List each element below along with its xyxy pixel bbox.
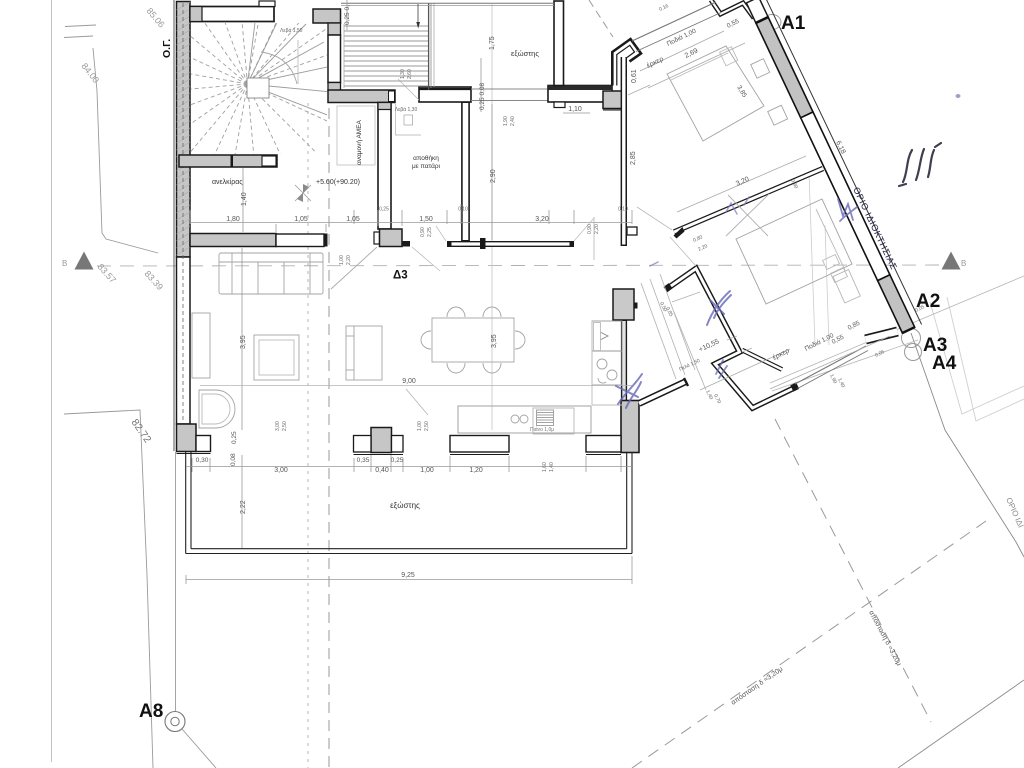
svg-text:A1: A1 [781, 13, 806, 34]
svg-text:Πιάνο 1,0μ: Πιάνο 1,0μ [530, 426, 554, 433]
svg-text:1,00: 1,00 [339, 255, 345, 265]
svg-text:2,90: 2,90 [490, 169, 497, 183]
svg-text:1,50: 1,50 [419, 216, 433, 223]
svg-text:A8: A8 [139, 701, 163, 722]
svg-text:3,00: 3,00 [275, 421, 281, 431]
svg-text:ανελκίρας: ανελκίρας [212, 178, 243, 186]
svg-text:3,00: 3,00 [274, 467, 288, 474]
svg-text:0,25: 0,25 [231, 431, 238, 444]
svg-text:1,40: 1,40 [549, 462, 555, 472]
svg-text:Ο.Γ.: Ο.Γ. [161, 39, 173, 58]
svg-text:1,60: 1,60 [542, 462, 548, 472]
svg-text:Δ3: Δ3 [393, 270, 408, 282]
svg-text:2,50: 2,50 [424, 421, 430, 431]
svg-text:2,85: 2,85 [630, 151, 637, 165]
svg-text:1,00: 1,00 [420, 467, 434, 474]
svg-text:1,00: 1,00 [417, 421, 423, 431]
svg-text:2,20: 2,20 [346, 255, 352, 265]
svg-text:3,95: 3,95 [491, 334, 498, 348]
svg-text:2,22: 2,22 [240, 500, 247, 514]
svg-text:B: B [961, 259, 966, 268]
svg-text:9,00: 9,00 [402, 378, 416, 385]
svg-text:B: B [62, 259, 67, 268]
svg-text:αποθήκη: αποθήκη [413, 155, 439, 162]
svg-text:Λεβά 1,30: Λεβά 1,30 [395, 106, 418, 113]
svg-text:0,35: 0,35 [357, 457, 370, 464]
svg-text:+5.60(+90.20): +5.60(+90.20) [316, 179, 360, 186]
svg-text:1,90: 1,90 [503, 116, 509, 126]
svg-text:1,30: 1,30 [400, 69, 406, 79]
svg-text:0,10: 0,10 [618, 207, 628, 213]
svg-text:0,08: 0,08 [230, 453, 237, 466]
svg-text:αναμονή ΑΜΕΑ: αναμονή ΑΜΕΑ [356, 119, 363, 165]
svg-text:A4: A4 [932, 353, 957, 374]
svg-text:με πατάρι: με πατάρι [412, 162, 441, 170]
svg-text:1,05: 1,05 [346, 216, 360, 223]
svg-text:9,25: 9,25 [401, 572, 415, 579]
svg-text:1,20: 1,20 [469, 467, 483, 474]
svg-text:1,80: 1,80 [226, 216, 240, 223]
svg-text:1,05: 1,05 [294, 216, 308, 223]
svg-text:0,25 0,: 0,25 0, [344, 5, 351, 25]
svg-text:2,25: 2,25 [427, 227, 433, 237]
svg-text:0,90: 0,90 [420, 227, 426, 237]
svg-text:2,60: 2,60 [407, 69, 413, 79]
svg-text:2,40: 2,40 [510, 116, 516, 126]
svg-text:εξώστης: εξώστης [390, 501, 420, 510]
svg-text:1,40: 1,40 [241, 192, 248, 206]
svg-text:0,25 0,08: 0,25 0,08 [479, 83, 486, 110]
svg-text:0,40: 0,40 [375, 467, 389, 474]
svg-text:εξώστης: εξώστης [511, 49, 539, 58]
svg-text:0,90: 0,90 [587, 224, 593, 234]
svg-text:2,50: 2,50 [282, 421, 288, 431]
svg-text:Λεβά 1,50: Λεβά 1,50 [280, 27, 303, 34]
svg-text:0,61: 0,61 [631, 69, 638, 83]
svg-text:0,25: 0,25 [379, 207, 389, 213]
svg-text:2,20: 2,20 [594, 224, 600, 234]
svg-text:1,75: 1,75 [489, 36, 496, 50]
svg-text:0,10: 0,10 [458, 207, 468, 213]
svg-text:0,25: 0,25 [391, 457, 404, 464]
svg-text:1,10: 1,10 [568, 106, 582, 113]
svg-text:3,95: 3,95 [240, 335, 247, 349]
svg-text:0,30: 0,30 [196, 457, 209, 464]
svg-text:3,20: 3,20 [535, 216, 549, 223]
